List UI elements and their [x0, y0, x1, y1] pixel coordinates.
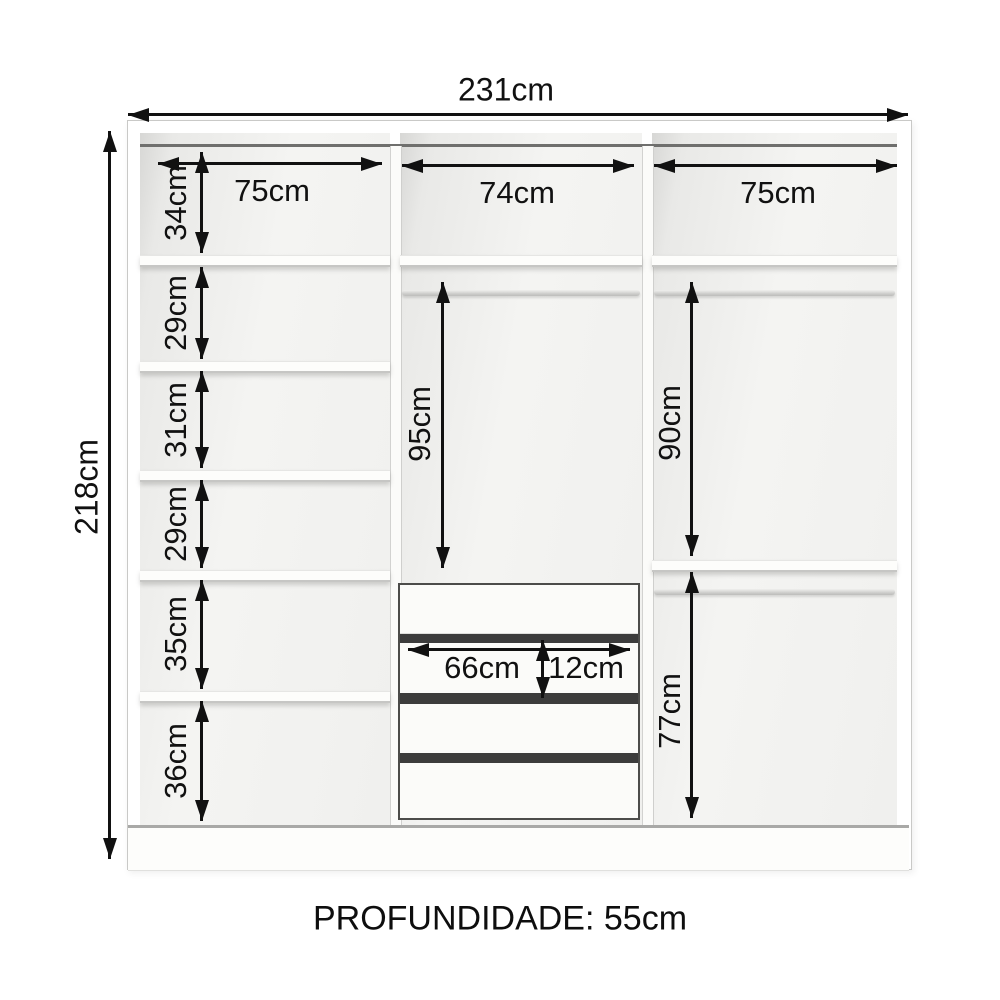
dim-drawer-width-label: 66cm	[444, 650, 520, 686]
dim-col-mid-label: 74cm	[479, 175, 555, 211]
dim-left-section-arrow	[200, 580, 203, 689]
drawer-3	[400, 704, 638, 753]
dim-left-section-arrow	[200, 152, 203, 253]
dim-mid-hanging-arrow	[441, 282, 444, 568]
top-shadow-line	[140, 144, 897, 147]
dim-total-height-arrow	[108, 131, 111, 859]
drawer-4	[400, 763, 638, 818]
dim-total-height-label: 218cm	[69, 439, 106, 535]
dim-col-right-label: 75cm	[740, 175, 816, 211]
dim-left-section-label: 34cm	[158, 165, 194, 241]
shelf	[140, 255, 390, 267]
dim-col-left-label: 75cm	[234, 173, 310, 209]
dim-left-section-arrow	[200, 267, 203, 359]
dim-total-width-label: 231cm	[458, 72, 554, 109]
dim-col-mid-arrow	[402, 164, 634, 167]
dim-col-right-arrow	[654, 164, 897, 167]
shelf	[140, 691, 390, 703]
shelf	[652, 255, 897, 267]
shelf	[400, 255, 642, 267]
dim-left-section-label: 29cm	[158, 275, 194, 351]
dim-left-section-label: 35cm	[158, 596, 194, 672]
dim-right-hanging-top-label: 90cm	[652, 385, 688, 461]
shelf	[140, 470, 390, 482]
interior-column-right	[652, 133, 897, 825]
dim-left-section-label: 36cm	[158, 723, 194, 799]
dim-left-section-label: 31cm	[158, 382, 194, 458]
dim-mid-hanging-label: 95cm	[402, 386, 438, 462]
wardrobe-base	[128, 825, 909, 871]
drawer-1	[400, 585, 638, 634]
dim-right-hanging-top-arrow	[690, 282, 693, 556]
dim-right-hanging-bottom-label: 77cm	[652, 673, 688, 749]
dim-left-section-arrow	[200, 371, 203, 468]
dim-drawer-height-label: 12cm	[548, 650, 624, 686]
shelf	[140, 570, 390, 582]
shelf	[652, 560, 897, 572]
dim-total-width-arrow	[128, 113, 908, 116]
shelf	[140, 361, 390, 373]
dim-left-section-arrow	[200, 480, 203, 568]
depth-note: PROFUNDIDADE: 55cm	[313, 900, 687, 939]
dim-left-section-arrow	[200, 701, 203, 821]
dim-right-hanging-bottom-arrow	[690, 572, 693, 818]
dim-left-section-label: 29cm	[158, 486, 194, 562]
wardrobe-dimension-diagram: 231cm 218cm 75cm 74cm 75cm 34cm 29cm 31c…	[0, 0, 1000, 1000]
dim-drawer-height-arrow	[541, 640, 544, 698]
drawer-unit	[398, 583, 640, 820]
